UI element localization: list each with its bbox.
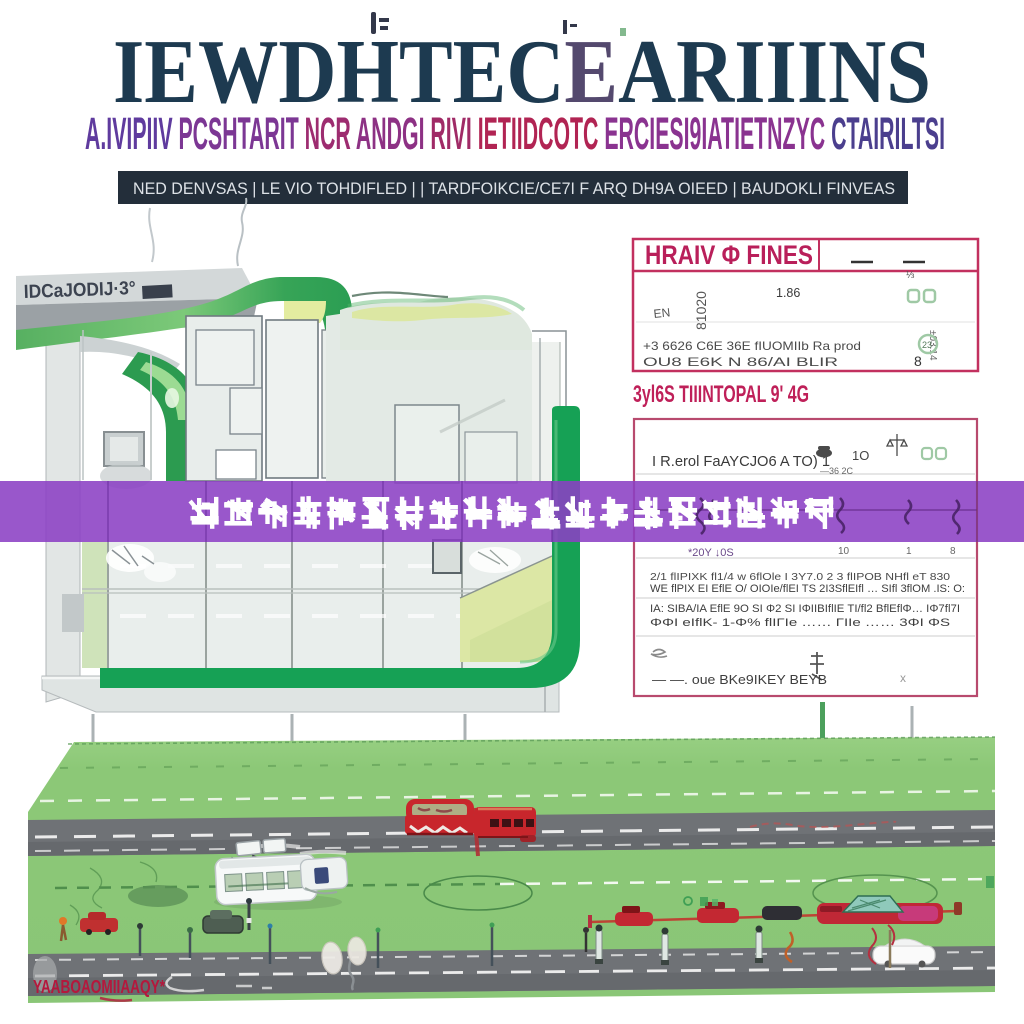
svg-text:⅓: ⅓ [906, 270, 915, 281]
svg-text:IEWDHTECEARIIINS: IEWDHTECEARIIINS [113, 21, 931, 122]
svg-text:OU8 E6K N 86/AI BLIR: OU8 E6K N 86/AI BLIR [643, 357, 838, 369]
svg-text:WE flPIX EI EflE O/ OIOIe/fl: WE flPIX EI EflE O/ OIOIe/flEI TS 2I3Sfl… [650, 583, 965, 595]
svg-text:A.IVIPIIV PCSHTARIT NCR ANDGI: A.IVIPIIV PCSHTARIT NCR ANDGI RIVI IETII… [85, 108, 945, 159]
svg-text:NED DENVSAS | LE VIO TOHDIFLED: NED DENVSAS | LE VIO TOHDIFLED | | TARDF… [133, 180, 895, 198]
svg-text:1O: 1O [852, 448, 869, 463]
svg-text:x: x [900, 671, 906, 685]
svg-text:*20Y ↓0S: *20Y ↓0S [688, 547, 734, 559]
svg-text:EN: EN [653, 305, 671, 321]
svg-text:I R.erol FaAYCJO6 A TO) 1: I R.erol FaAYCJO6 A TO) 1 [652, 453, 830, 470]
svg-text:ΦΦI eIflΚ- 1-Φ% flIΓIe …… ΓII: ΦΦI eIflΚ- 1-Φ% flIΓIe …… ΓIIe …… 3ΦI ΦS [650, 617, 950, 629]
svg-text:IA: SIBA/IA EflE 9O SI Φ2 SI: IA: SIBA/IA EflE 9O SI Φ2 SI IΦIIBIflIE … [650, 603, 960, 615]
svg-text:1.86: 1.86 [776, 286, 800, 300]
svg-text:8: 8 [950, 546, 956, 557]
svg-text:3yl6S TIIINTOPAL 9' 4G: 3yl6S TIIINTOPAL 9' 4G [633, 381, 809, 408]
svg-text:2/1 flIPIXK fl1/4 w 6flOle: 2/1 flIPIXK fl1/4 w 6flOle I 3Y7.0 2 3 f… [650, 572, 951, 583]
svg-text:+3 6626 C6E 36E fIUOMIIb Ra p: +3 6626 C6E 36E fIUOMIIb Ra prod [643, 339, 861, 353]
svg-text:YAABOAOMIIAAQY*: YAABOAOMIIAAQY* [33, 977, 165, 997]
svg-text:81020: 81020 [693, 291, 709, 330]
svg-text:— —. oue BKe9IKEY BEYB: — —. oue BKe9IKEY BEYB [652, 672, 827, 687]
svg-text:IDCaJODIJ·3°: IDCaJODIJ·3° [23, 278, 136, 303]
svg-text:1: 1 [906, 546, 912, 557]
svg-text:—36 2C: —36 2C [820, 466, 854, 476]
svg-text:23: 23 [922, 340, 932, 350]
svg-text:8: 8 [914, 353, 922, 369]
svg-text:10: 10 [838, 546, 850, 557]
svg-text:HRAIV Φ FINES: HRAIV Φ FINES [645, 240, 813, 270]
